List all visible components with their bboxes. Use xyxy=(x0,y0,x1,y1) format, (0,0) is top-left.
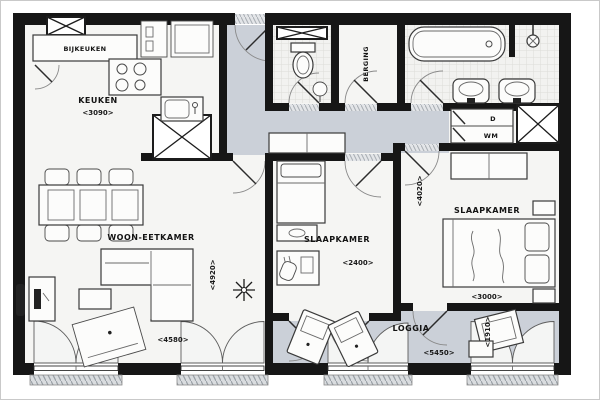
room-label-slaapkamer-2: SLAAPKAMER xyxy=(454,206,520,215)
hall-closet xyxy=(171,21,213,57)
dryer-label: D xyxy=(490,115,496,123)
double-bed xyxy=(443,219,555,287)
stove xyxy=(109,59,161,95)
dim-keuken-width: <3090> xyxy=(82,109,113,117)
tv-cabinet xyxy=(29,277,55,321)
nightstand xyxy=(533,289,555,303)
washing-machine-label: WM xyxy=(484,132,498,140)
floor-plan-drawing: D WM xyxy=(1,1,600,400)
toilet-tank xyxy=(291,43,315,52)
wc-hand-basin xyxy=(313,82,327,96)
bedroom1-furniture xyxy=(277,161,325,285)
laundry-closet: D WM xyxy=(451,109,513,143)
pillow xyxy=(281,164,321,177)
room-label-berging: BERGING xyxy=(362,46,370,82)
dining-set xyxy=(39,169,143,241)
room-label-keuken: KEUKEN xyxy=(78,96,118,105)
dim-woonkamer-depth: <4920> xyxy=(209,259,217,290)
room-label-woon-eetkamer: WOON-EETKAMER xyxy=(107,233,194,242)
room-label-loggia: LOGGIA xyxy=(393,324,430,333)
kitchen-sink xyxy=(161,97,203,121)
washbasin xyxy=(499,79,535,103)
wardrobe xyxy=(451,153,527,179)
single-bed xyxy=(277,161,325,223)
room-label-slaapkamer-1: SLAAPKAMER xyxy=(304,235,370,244)
berging-threshold xyxy=(345,104,377,111)
bedroom1-threshold xyxy=(345,154,381,161)
pillow xyxy=(525,223,549,251)
plant-icon xyxy=(233,279,255,301)
coffee-table xyxy=(79,289,111,309)
dim-woonkamer-width: <4580> xyxy=(157,336,188,344)
dim-slaapkamer2-depth: <4020> xyxy=(416,175,424,206)
washbasin xyxy=(453,79,489,103)
room-label-bijkeuken: BIJKEUKEN xyxy=(63,45,106,53)
wc-threshold xyxy=(289,104,319,111)
bathtub xyxy=(409,27,505,61)
dim-slaapkamer2-width: <3000> xyxy=(471,293,502,301)
dim-loggia-depth: <1910> xyxy=(484,316,492,347)
dining-table xyxy=(39,185,143,225)
bedroom2-threshold xyxy=(405,144,439,151)
nightstand xyxy=(533,201,555,215)
floor-plan: D WM xyxy=(0,0,600,400)
meter-closet xyxy=(141,21,167,57)
pillow xyxy=(525,255,549,283)
dim-slaapkamer1-width: <2400> xyxy=(342,259,373,267)
bathroom-threshold xyxy=(411,104,443,111)
radiator xyxy=(16,284,25,316)
dim-loggia-width: <5450> xyxy=(423,349,454,357)
